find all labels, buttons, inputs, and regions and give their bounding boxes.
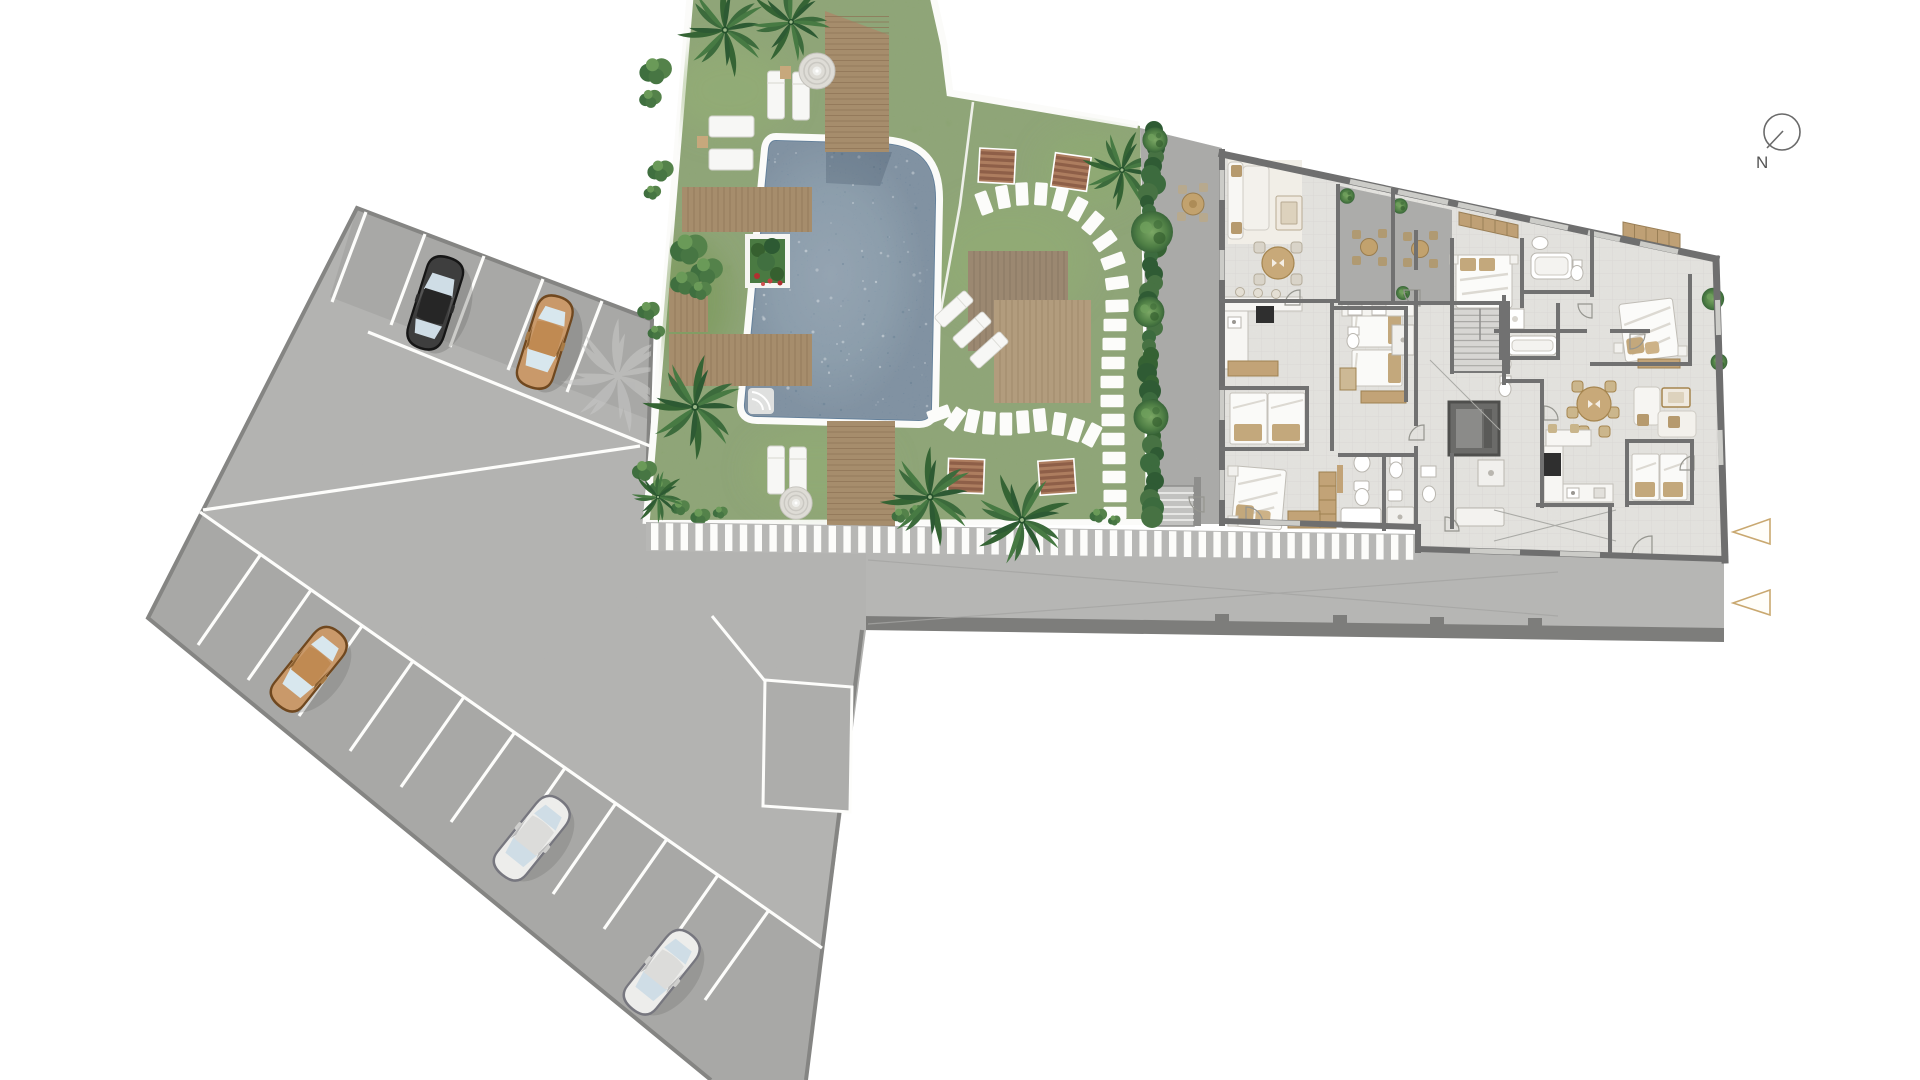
svg-text:N: N bbox=[1756, 153, 1768, 172]
